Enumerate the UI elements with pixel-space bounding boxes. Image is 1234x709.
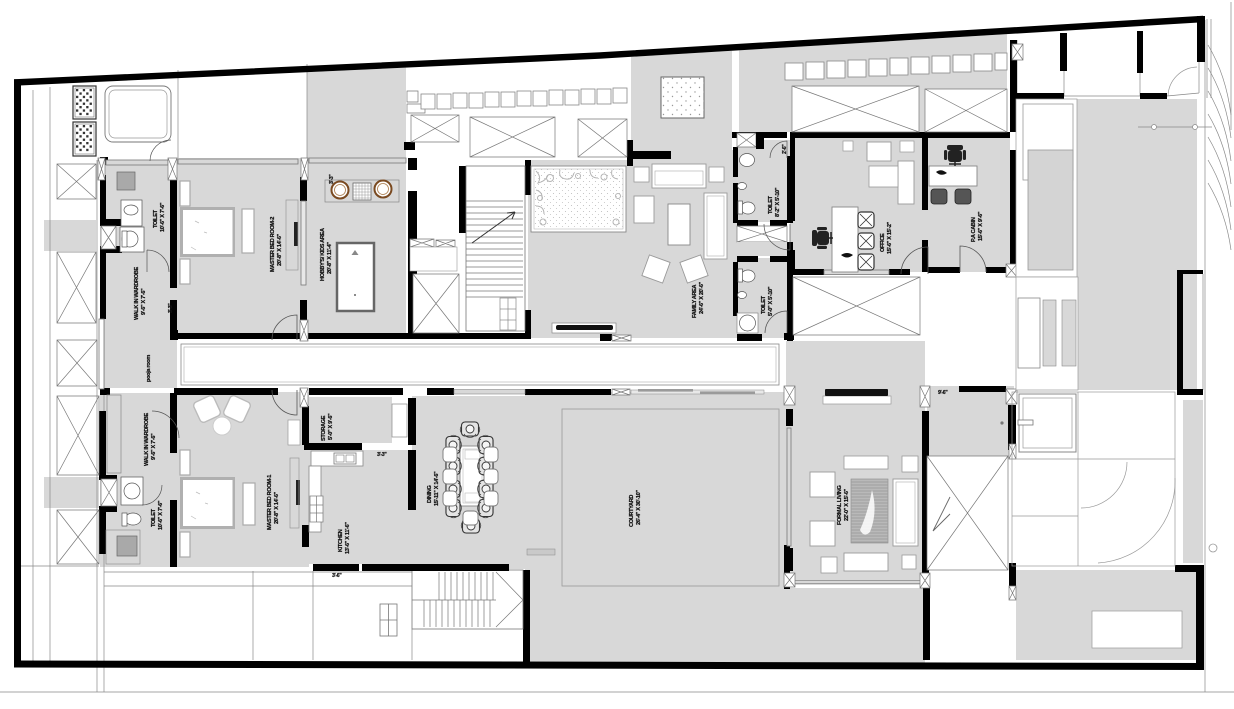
svg-text:9'-6" X 7'-6": 9'-6" X 7'-6"	[141, 288, 147, 315]
svg-text:3'-3": 3'-3"	[329, 174, 335, 184]
svg-text:5'-0" X 5'-10": 5'-0" X 5'-10"	[768, 286, 774, 316]
svg-text:9'-6": 9'-6"	[938, 390, 948, 396]
svg-text:MASTER BED ROOM-2: MASTER BED ROOM-2	[270, 217, 276, 272]
svg-text:20'-8" X 11'-4": 20'-8" X 11'-4"	[327, 242, 333, 274]
svg-text:3'-3": 3'-3"	[168, 303, 174, 313]
svg-text:20'-8" X 14'-6": 20'-8" X 14'-6"	[277, 233, 283, 266]
svg-text:KITCHEN: KITCHEN	[338, 529, 344, 552]
svg-text:FORMAL LIVING: FORMAL LIVING	[837, 486, 843, 525]
svg-text:pooja room: pooja room	[146, 355, 152, 382]
svg-text:15'-11" X 14'-6": 15'-11" X 14'-6"	[434, 471, 440, 506]
svg-text:20'-8" X 14'-6": 20'-8" X 14'-6"	[274, 491, 280, 524]
svg-text:22'-0" X 15'-6": 22'-0" X 15'-6"	[844, 488, 850, 521]
svg-text:TOILET: TOILET	[151, 508, 157, 527]
svg-text:P.A CABIN: P.A CABIN	[971, 217, 977, 242]
svg-text:FAMILY AREA: FAMILY AREA	[692, 284, 698, 318]
svg-text:WALK IN WARDROBE: WALK IN WARDROBE	[134, 267, 140, 320]
svg-text:10'-6" X 7'-6": 10'-6" X 7'-6"	[160, 202, 166, 232]
svg-text:15'-6" X 9'-6": 15'-6" X 9'-6"	[978, 211, 984, 241]
svg-text:9'-6" X 7'-6": 9'-6" X 7'-6"	[151, 433, 157, 460]
svg-text:STORAGE: STORAGE	[321, 415, 327, 441]
svg-text:13'-6" X 11'-6": 13'-6" X 11'-6"	[345, 522, 351, 554]
svg-text:2'-6": 2'-6"	[782, 144, 788, 154]
svg-text:TOILET: TOILET	[761, 295, 767, 314]
svg-text:COURTYARD: COURTYARD	[629, 495, 635, 527]
svg-text:10'-6" X 7'-6": 10'-6" X 7'-6"	[158, 500, 164, 530]
svg-text:TOILET: TOILET	[768, 195, 774, 214]
svg-text:24'-6" X 20'-6": 24'-6" X 20'-6"	[699, 281, 705, 314]
svg-text:15'-6" X 15'-2": 15'-6" X 15'-2"	[887, 221, 893, 254]
svg-text:HOBBY'S/ KIDS AREA: HOBBY'S/ KIDS AREA	[320, 228, 326, 281]
svg-text:5'-0" X 9'-6": 5'-0" X 9'-6"	[328, 413, 334, 440]
svg-text:3'-3": 3'-3"	[377, 452, 387, 458]
svg-text:3'-6": 3'-6"	[332, 573, 342, 579]
svg-text:DINING: DINING	[427, 486, 433, 503]
svg-text:OFFICE: OFFICE	[880, 233, 886, 252]
svg-text:26'-4" X 30'-10": 26'-4" X 30'-10"	[636, 490, 642, 525]
svg-text:8'-2" X 5'-10": 8'-2" X 5'-10"	[775, 187, 781, 217]
svg-text:TOILET: TOILET	[153, 209, 159, 228]
svg-text:WALK IN WARDROBE: WALK IN WARDROBE	[144, 413, 150, 466]
svg-text:MASTER BED ROOM-1: MASTER BED ROOM-1	[267, 475, 273, 530]
